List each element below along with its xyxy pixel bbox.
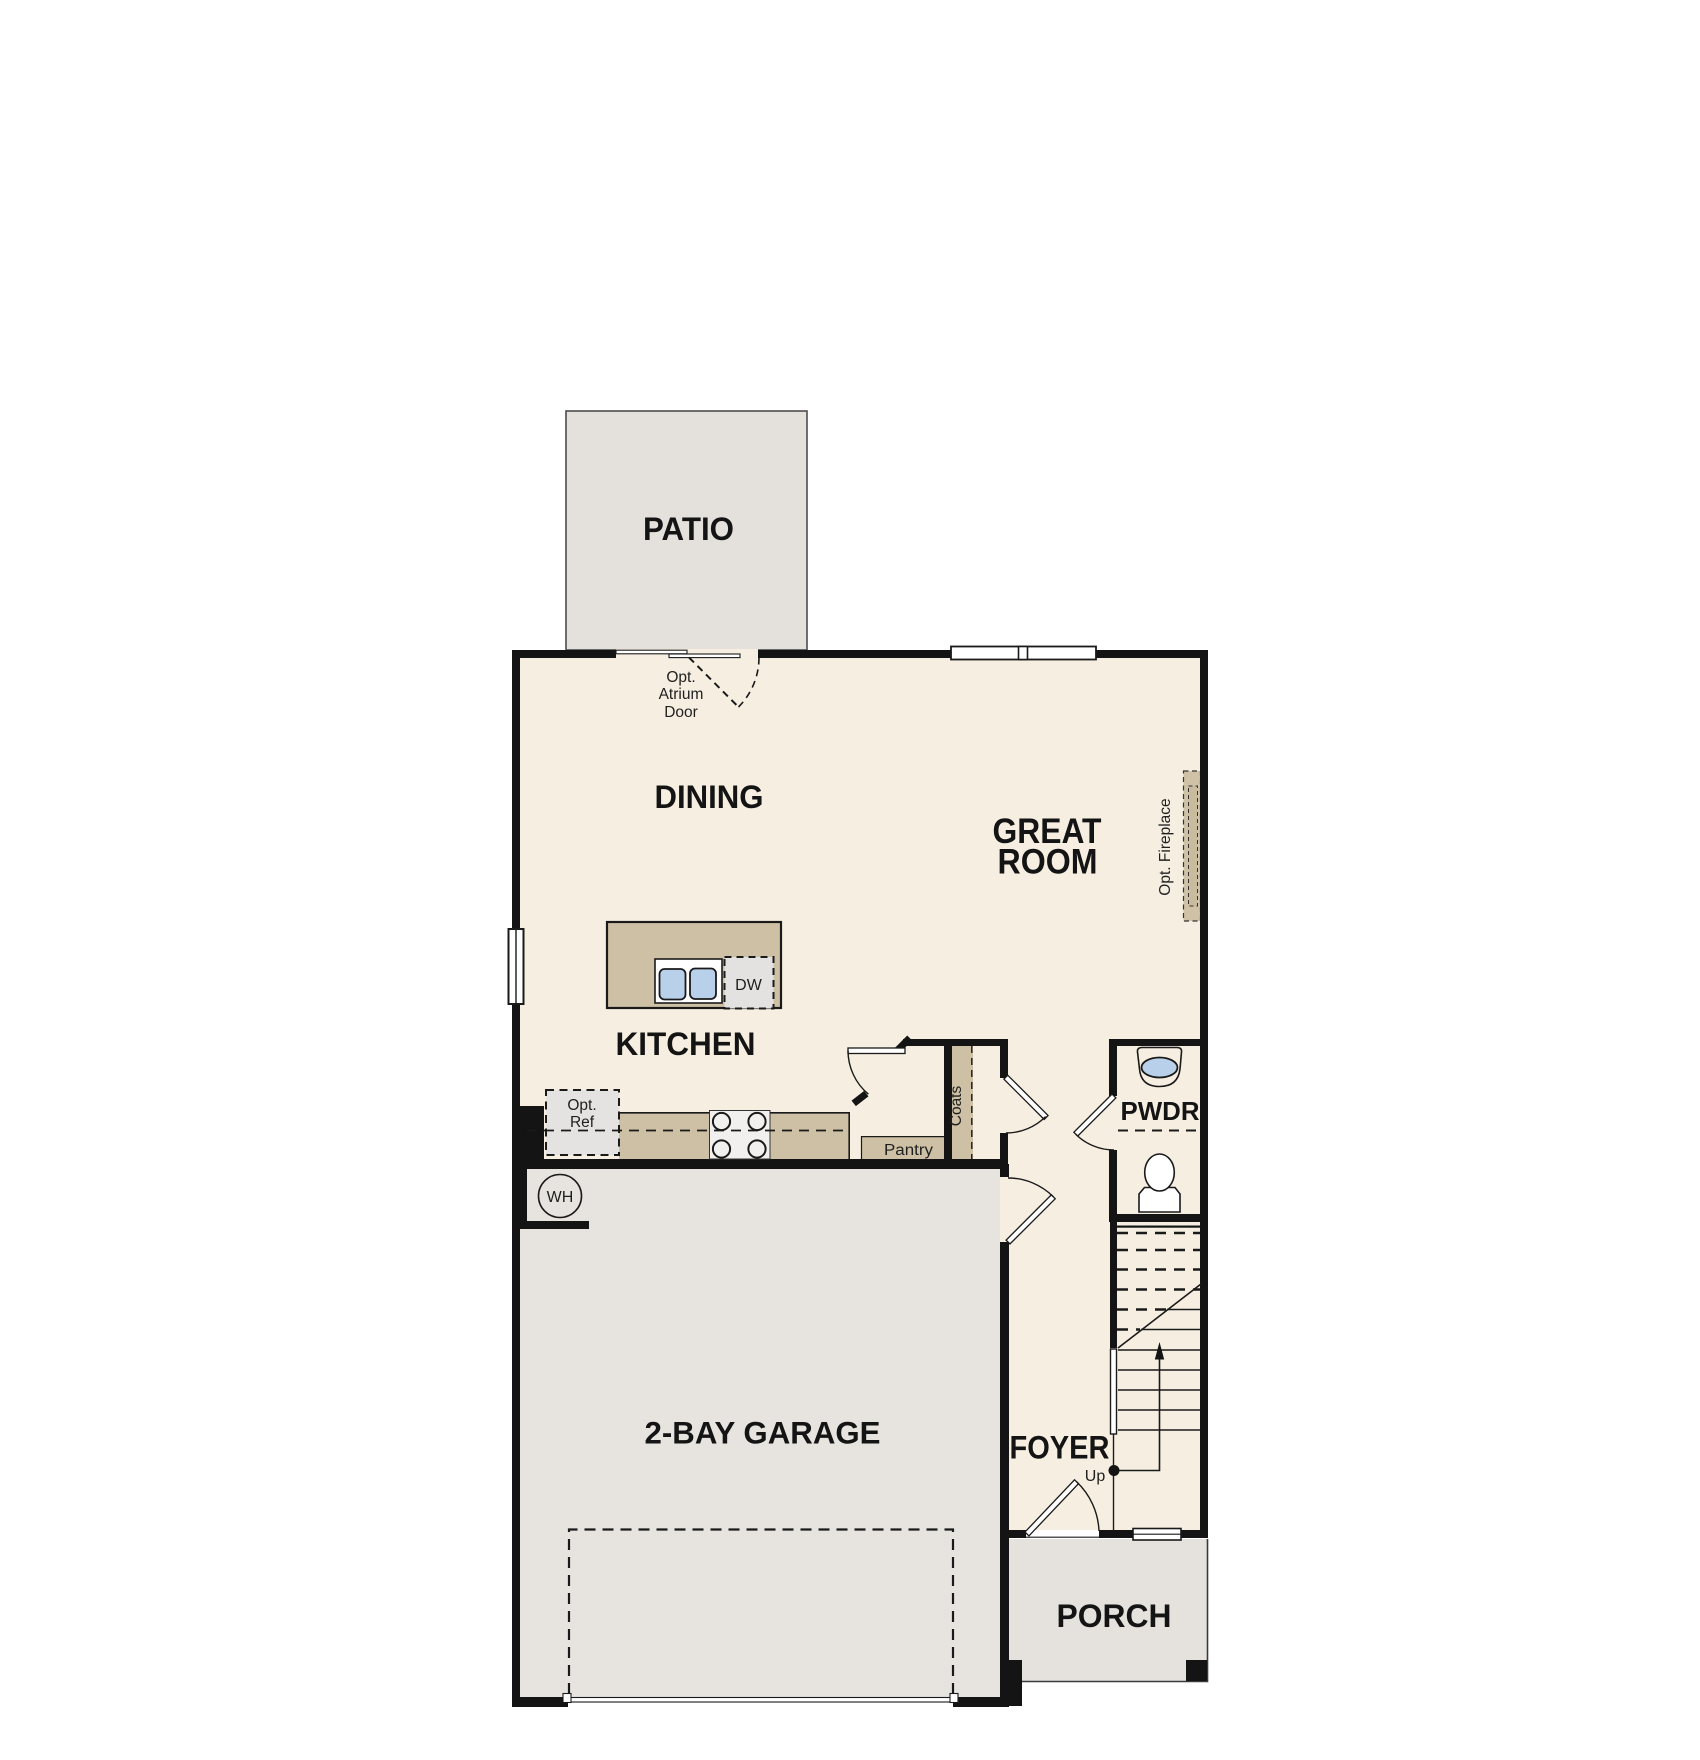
svg-text:KITCHEN: KITCHEN	[616, 1026, 756, 1062]
svg-text:PORCH: PORCH	[1057, 1598, 1172, 1634]
svg-text:Ref: Ref	[570, 1114, 595, 1131]
svg-text:2-BAY GARAGE: 2-BAY GARAGE	[645, 1415, 881, 1451]
svg-text:Opt.: Opt.	[666, 669, 695, 686]
svg-text:Atrium: Atrium	[659, 686, 704, 703]
svg-text:FOYER: FOYER	[1010, 1430, 1110, 1466]
svg-text:WH: WH	[547, 1189, 574, 1206]
svg-text:DW: DW	[735, 977, 763, 994]
svg-text:PWDR: PWDR	[1121, 1096, 1200, 1126]
svg-text:Opt.: Opt.	[567, 1097, 596, 1114]
svg-text:DINING: DINING	[655, 779, 764, 815]
svg-text:Up: Up	[1085, 1468, 1106, 1485]
svg-text:Pantry: Pantry	[884, 1142, 933, 1159]
svg-text:ROOM: ROOM	[998, 843, 1098, 882]
svg-text:Coats: Coats	[948, 1086, 965, 1127]
svg-text:PATIO: PATIO	[643, 511, 734, 547]
svg-text:Opt. Fireplace: Opt. Fireplace	[1157, 798, 1174, 895]
svg-text:Door: Door	[664, 704, 698, 721]
